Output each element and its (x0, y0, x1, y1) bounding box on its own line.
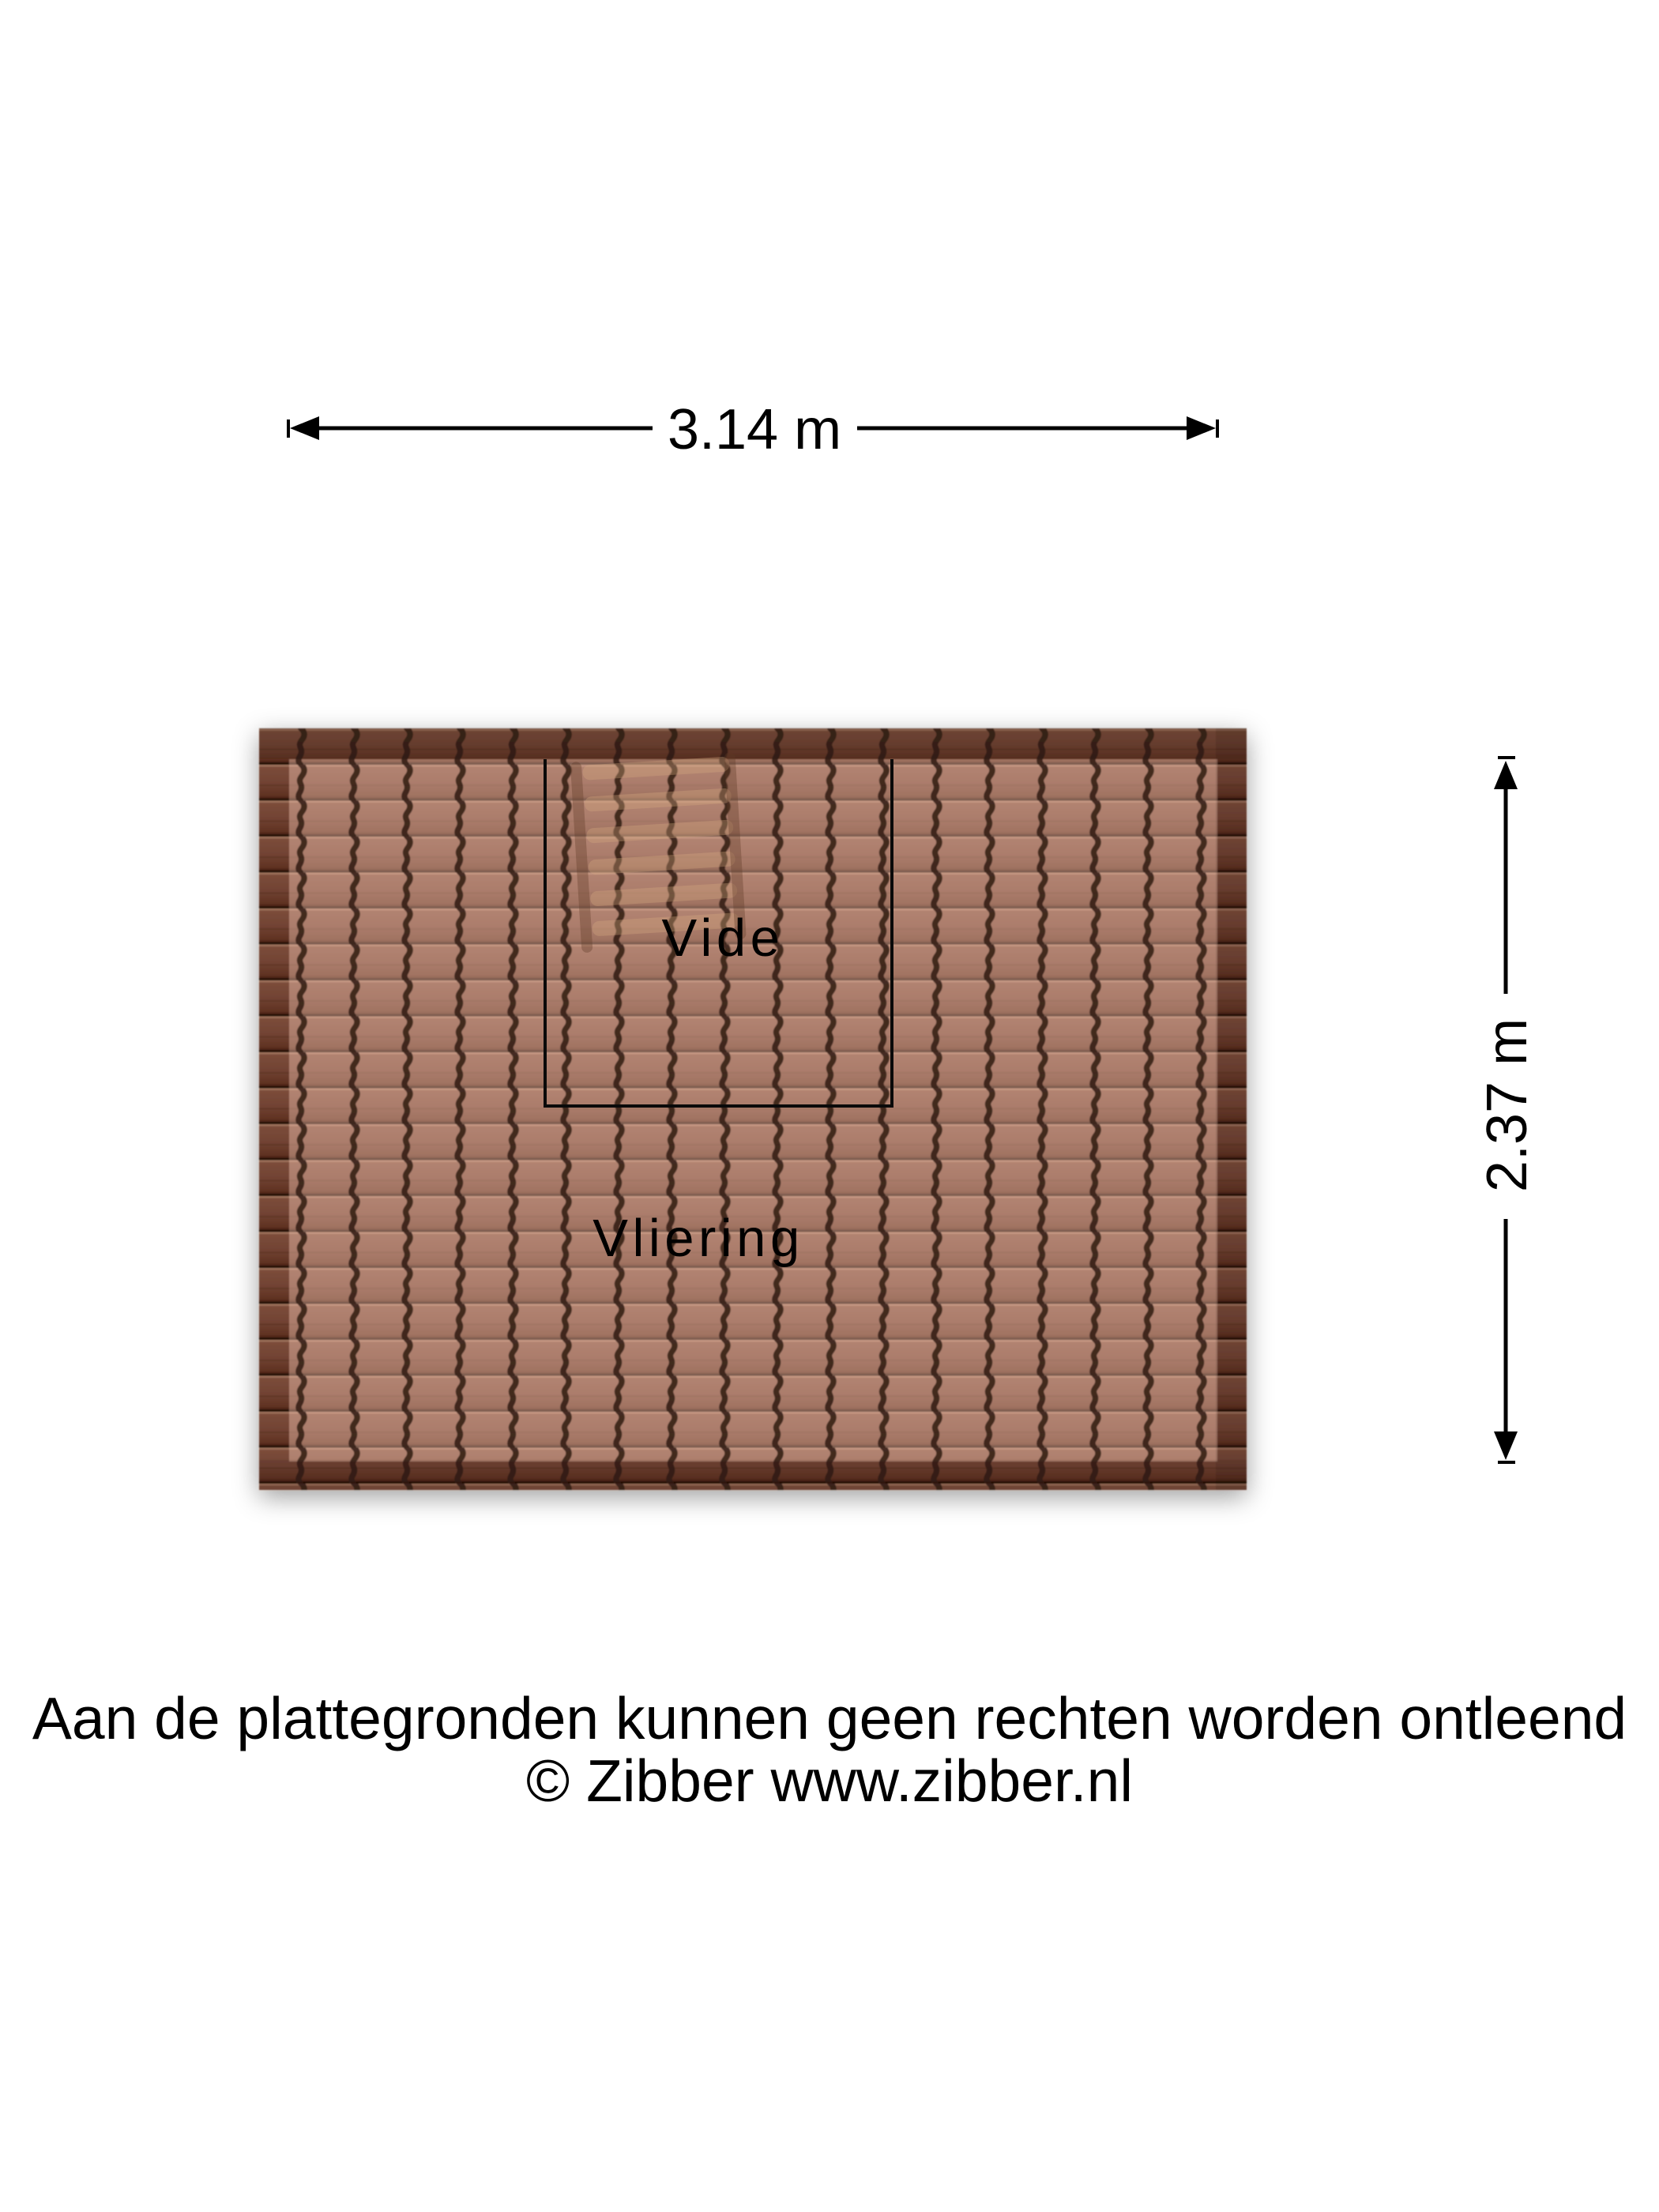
svg-text:© Zibber www.zibber.nl: © Zibber www.zibber.nl (526, 1747, 1133, 1814)
svg-text:Aan de plattegronden kunnen ge: Aan de plattegronden kunnen geen rechten… (32, 1685, 1627, 1751)
svg-text:Vide: Vide (662, 908, 784, 968)
svg-text:2.37 m: 2.37 m (1476, 1018, 1539, 1192)
svg-text:3.14 m: 3.14 m (668, 398, 841, 461)
svg-text:Vliering: Vliering (592, 1209, 803, 1268)
